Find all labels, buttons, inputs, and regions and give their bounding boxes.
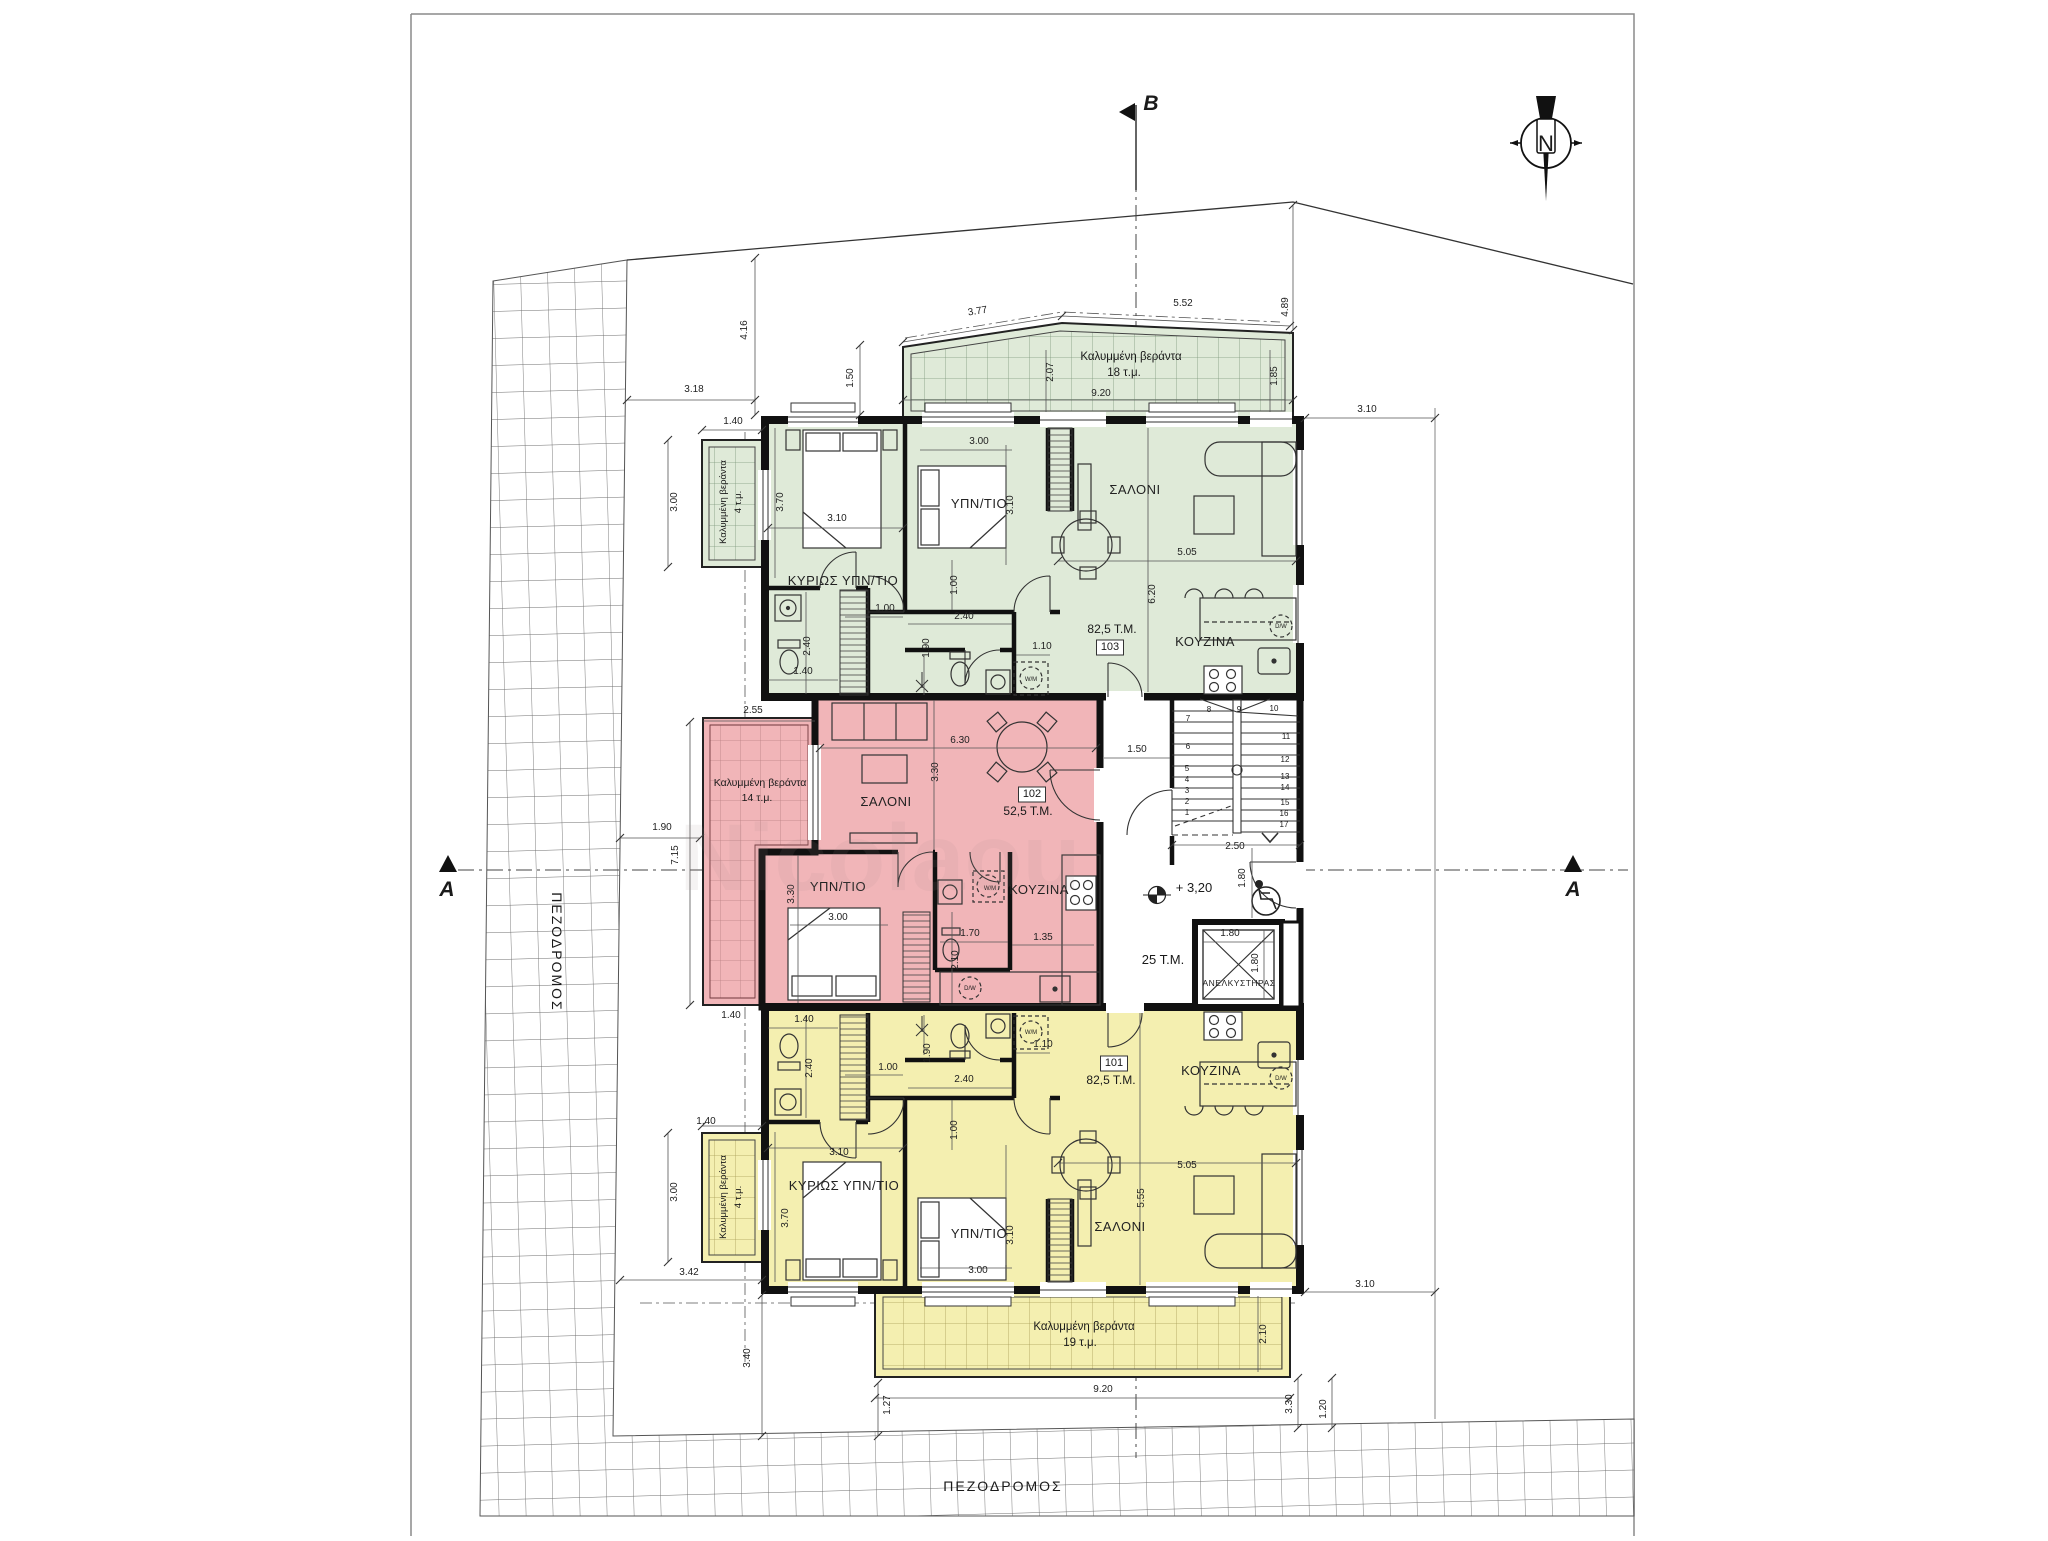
dimension-label: 3.00 (669, 492, 680, 512)
room-label: ΥΠΝ/ΤΙΟ (951, 1226, 1007, 1241)
section-arrow-A-right (1564, 855, 1582, 872)
section-arrow-B (1119, 103, 1135, 121)
dimension-label: 1.50 (1127, 744, 1147, 755)
stair-step-number: 5 (1185, 764, 1190, 773)
dimension-label: 3.00 (828, 912, 848, 923)
street-label: ΠΕΖΟΔΡΟΜΟΣ (549, 892, 565, 1011)
fixture-label: D/W (1275, 1076, 1287, 1082)
dimension-label: 1.40 (696, 1116, 716, 1127)
dimension-label: 3.10 (1357, 404, 1377, 415)
dimension-label: 2.40 (954, 1074, 974, 1085)
dimension-label: 1.20 (1318, 1399, 1329, 1419)
dimension-label: 5.05 (1177, 547, 1197, 558)
dimension-label: 1.90 (922, 1043, 933, 1063)
dimension-label: 2.40 (954, 611, 974, 622)
stair-step-number: 17 (1280, 820, 1289, 829)
dimension-label: 1.90 (921, 638, 932, 658)
stair-step-number: 16 (1280, 809, 1289, 818)
section-marker-label: B (1143, 92, 1158, 115)
dimension-label: 2.10 (950, 950, 961, 970)
stair-step-number: 13 (1281, 772, 1290, 781)
dimension-label: 3.10 (1005, 1225, 1016, 1245)
dimension-label: 1.80 (1220, 928, 1240, 939)
dimension-label: 3.42 (679, 1267, 699, 1278)
dimension-label: 1.00 (949, 575, 960, 595)
veranda-4sqm-upper (702, 440, 762, 567)
room-label: ΥΠΝ/ΤΙΟ (951, 496, 1007, 511)
dimension-label: 1.70 (960, 928, 980, 939)
elevator (1195, 922, 1300, 1007)
room-label: ΣΑΛΟΝΙ (1094, 1219, 1145, 1234)
veranda-label: 4 τ.μ. (733, 491, 744, 513)
dimension-label: 3.00 (969, 436, 989, 447)
dimension-label: 2.40 (802, 636, 813, 656)
dimension-label: 1.00 (875, 603, 895, 614)
veranda-4sqm-lower (702, 1133, 762, 1262)
dimension-label: 5.05 (1177, 1160, 1197, 1171)
dimension-label: 1.40 (721, 1010, 741, 1021)
dimension-label: 2.55 (743, 705, 763, 716)
section-marker-label: A (438, 878, 454, 901)
dimension-label: 1.00 (949, 1120, 960, 1140)
dimension-label: 3.70 (775, 492, 786, 512)
fixture-label: W/M (1025, 677, 1037, 683)
dimension-label: 1.80 (1250, 953, 1261, 973)
level-label: + 3,20 (1176, 880, 1213, 895)
fixture-label: D/W (1275, 624, 1287, 630)
section-marker-label: A (1564, 878, 1580, 901)
dimension-label: 3.70 (780, 1208, 791, 1228)
dimension-label: 3.10 (1005, 495, 1016, 515)
veranda-label: Καλυμμένη βεράντα (1033, 1321, 1135, 1333)
dimension-label: 3.10 (827, 513, 847, 524)
stair-step-number: 3 (1185, 786, 1190, 795)
dimension-label: 2.40 (804, 1058, 815, 1078)
dimension-label: 9.20 (1091, 388, 1111, 399)
room-label: ΣΑΛΟΝΙ (1109, 482, 1160, 497)
stair-step-number: 4 (1185, 775, 1190, 784)
stair-step-number: 10 (1270, 704, 1279, 713)
fixture-label: W/M (1025, 1030, 1037, 1036)
stair-step-number: 1 (1185, 808, 1190, 817)
unit-number: 101 (1105, 1057, 1123, 1069)
compass-n-label: N (1538, 131, 1554, 156)
section-arrow-A-left (439, 855, 457, 872)
street-label: ΠΕΖΟΔΡΟΜΟΣ (943, 1478, 1062, 1494)
dimension-label: 1.10 (1032, 641, 1052, 652)
stair-step-number: 9 (1237, 705, 1242, 714)
dimension-label: 1.10 (1033, 1039, 1053, 1050)
room-label: ΚΥΡΙΩΣ ΥΠΝ/ΤΙΟ (789, 1178, 899, 1193)
stair-step-number: 12 (1281, 755, 1290, 764)
dimension-label: 3.40 (742, 1348, 753, 1368)
veranda-label: Καλυμμένη βεράντα (718, 1155, 729, 1239)
dimension-label: 3.30 (930, 762, 941, 782)
dimension-label: 3.77 (967, 305, 988, 319)
bed (786, 430, 897, 548)
veranda-label: Καλυμμένη βεράντα (718, 460, 729, 544)
dimension-label: 1.40 (723, 416, 743, 427)
dimension-label: 3.00 (669, 1182, 680, 1202)
fixture-label: D/W (964, 986, 976, 992)
area-label: 82,5 T.M. (1086, 1073, 1135, 1087)
dimension-label: 4.16 (739, 320, 750, 340)
stair-step-number: 11 (1282, 732, 1291, 741)
dimension-label: 3.00 (968, 1265, 988, 1276)
unit-number: 103 (1101, 641, 1119, 653)
dimension-label: 1.35 (1033, 932, 1053, 943)
dimension-label: 6.20 (1147, 584, 1158, 604)
area-label: 82,5 T.M. (1087, 622, 1136, 636)
veranda-label: 14 τ.μ. (742, 792, 773, 804)
stair-step-number: 7 (1186, 714, 1191, 723)
dimension-label: 2.07 (1045, 362, 1056, 382)
room-label: ΑΝΕΛΚΥΣΤΗΡΑΣ (1202, 978, 1275, 988)
veranda-label: Καλυμμένη βεράντα (1080, 351, 1182, 363)
site-boundary (627, 202, 1633, 284)
dimension-label: 6.30 (950, 735, 970, 746)
veranda-label: Καλυμμένη βεράντα (714, 777, 807, 789)
floor-plan-canvas: BAANΠΕΖΟΔΡΟΜΟΣΠΕΖΟΔΡΟΜΟΣΚΥΡΙΩΣ ΥΠΝ/ΤΙΟΥΠ… (0, 0, 2048, 1536)
veranda-label: 4 τ.μ. (733, 1186, 744, 1208)
dimension-label: 1.00 (878, 1062, 898, 1073)
area-label: 25 T.M. (1142, 952, 1184, 967)
dimension-label: 3.10 (1355, 1279, 1375, 1290)
room-label: ΚΟΥΖΙΝΑ (1175, 634, 1235, 649)
dimension-label: 1.50 (845, 368, 856, 388)
dimension-label: 1.27 (882, 1395, 893, 1415)
watermark: Nicolaou (679, 805, 1080, 911)
room-label: ΚΟΥΖΙΝΑ (1181, 1063, 1241, 1078)
dimension-label: 3.30 (1284, 1394, 1295, 1414)
veranda-label: 19 τ.μ. (1063, 1337, 1097, 1349)
dimension-label: 4.89 (1280, 297, 1291, 317)
dimension-label: 2.50 (1225, 841, 1245, 852)
stair-step-number: 8 (1207, 705, 1212, 714)
dimension-label: 9.20 (1093, 1384, 1113, 1395)
dimension-label: 5.55 (1136, 1188, 1147, 1208)
veranda-label: 18 τ.μ. (1107, 367, 1141, 379)
stair-step-number: 2 (1185, 797, 1190, 806)
room-label: ΚΥΡΙΩΣ ΥΠΝ/ΤΙΟ (788, 573, 898, 588)
dimension-label: 1.80 (1237, 868, 1248, 888)
stair-step-number: 14 (1281, 783, 1290, 792)
stair-step-number: 6 (1186, 742, 1191, 751)
dimension-label: 1.40 (793, 666, 813, 677)
dimension-label: 2.10 (1258, 1324, 1269, 1344)
dimension-label: 1.40 (794, 1014, 814, 1025)
dimension-label: 1.85 (1269, 366, 1280, 386)
unit-number: 102 (1023, 788, 1041, 800)
dimension-label: 3.18 (684, 384, 704, 395)
dimension-label: 3.10 (829, 1147, 849, 1158)
dimension-label: 1.90 (652, 822, 672, 833)
stair-step-number: 15 (1281, 798, 1290, 807)
dimension-label: 5.52 (1173, 298, 1193, 309)
